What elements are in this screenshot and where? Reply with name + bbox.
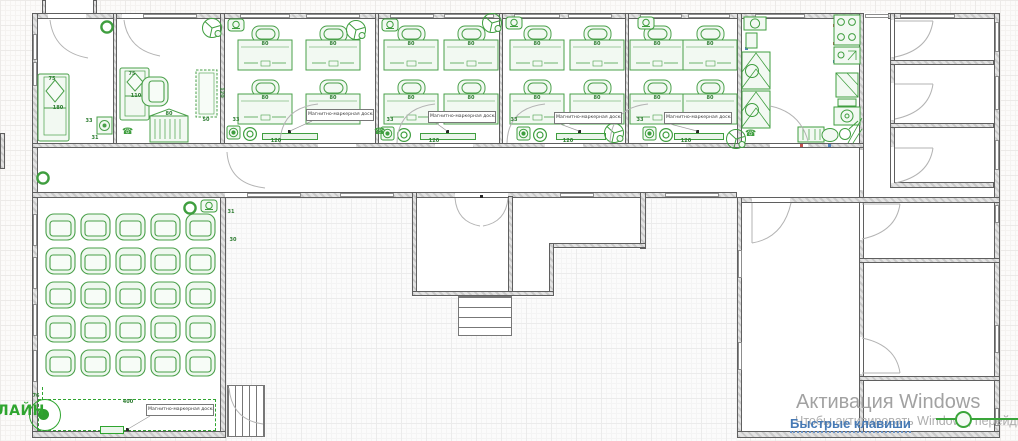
camera-icon[interactable] bbox=[201, 200, 217, 212]
appliance-dim: 31 bbox=[88, 136, 102, 141]
ceiling-fan-icon[interactable] bbox=[347, 21, 366, 40]
bin-icon[interactable] bbox=[660, 129, 673, 142]
camera-icon[interactable] bbox=[382, 19, 398, 31]
desk-width-dim: 80 bbox=[248, 42, 282, 47]
board-length-dim: 120 bbox=[422, 139, 446, 144]
chair[interactable] bbox=[81, 350, 110, 376]
wall-gap-dim: 33 bbox=[632, 118, 648, 123]
door-swing bbox=[50, 20, 933, 424]
desk[interactable] bbox=[238, 80, 292, 124]
chair[interactable] bbox=[116, 248, 145, 274]
desk-width-dim: 80 bbox=[248, 96, 282, 101]
chair[interactable] bbox=[151, 350, 180, 376]
desk-width-dim: 80 bbox=[580, 42, 614, 47]
ceiling-vent[interactable] bbox=[744, 17, 766, 30]
desk[interactable] bbox=[630, 26, 684, 70]
chair[interactable] bbox=[186, 248, 215, 274]
desk-width-dim: 80 bbox=[520, 96, 554, 101]
hall-dim: 30 bbox=[226, 238, 240, 243]
vent-fan-icon[interactable] bbox=[37, 172, 48, 183]
chair[interactable] bbox=[186, 350, 215, 376]
chair[interactable] bbox=[186, 214, 215, 240]
bin-icon[interactable] bbox=[534, 129, 547, 142]
chair[interactable] bbox=[46, 316, 75, 342]
chair[interactable] bbox=[151, 214, 180, 240]
desk-width-dim: 80 bbox=[316, 42, 350, 47]
desk[interactable] bbox=[384, 26, 438, 70]
desk[interactable] bbox=[510, 26, 564, 70]
desk-width-dim: 80 bbox=[394, 96, 428, 101]
hall-board-dim: 400 bbox=[108, 400, 148, 405]
chair[interactable] bbox=[116, 350, 145, 376]
desk-width-dim: 80 bbox=[454, 42, 488, 47]
furniture-layer bbox=[0, 0, 1018, 441]
board-label[interactable]: Магнитно-маркерная доска bbox=[664, 112, 732, 124]
shortcuts-link[interactable]: Быстрые клавиши bbox=[790, 416, 911, 433]
board-length-dim: 120 bbox=[264, 139, 288, 144]
sofa-width-dim: 75 bbox=[44, 77, 60, 82]
door-slider-handle[interactable] bbox=[955, 411, 972, 428]
appliance-dim: 33 bbox=[82, 119, 96, 124]
desk[interactable] bbox=[683, 26, 737, 70]
appliance[interactable] bbox=[97, 117, 112, 134]
table-width-dim: 50 bbox=[198, 118, 214, 123]
floor-plan-canvas: { "watermark": { "line1": "Активация Win… bbox=[0, 0, 1018, 441]
desk[interactable] bbox=[238, 26, 292, 70]
door-slider-track bbox=[936, 418, 1018, 420]
board-length-dim: 120 bbox=[556, 139, 580, 144]
desk-width-dim: 80 bbox=[394, 42, 428, 47]
desk[interactable] bbox=[570, 26, 624, 70]
chair[interactable] bbox=[142, 77, 168, 106]
phone-icon[interactable]: ☎ bbox=[745, 130, 756, 139]
wardrobe-dim: 80 bbox=[160, 112, 178, 117]
chair[interactable] bbox=[46, 214, 75, 240]
wall-gap-dim: 33 bbox=[506, 118, 522, 123]
chair[interactable] bbox=[151, 282, 180, 308]
chair[interactable] bbox=[116, 214, 145, 240]
desk-width-dim: 80 bbox=[454, 96, 488, 101]
sofa-length-dim: 180 bbox=[48, 106, 68, 111]
chair[interactable] bbox=[46, 282, 75, 308]
desk-width-dim: 80 bbox=[693, 96, 727, 101]
desk-width-dim: 80 bbox=[580, 96, 614, 101]
table[interactable] bbox=[196, 70, 217, 117]
board-length-dim: 120 bbox=[674, 139, 698, 144]
chair[interactable] bbox=[81, 316, 110, 342]
vent-fan-icon[interactable] bbox=[184, 202, 195, 213]
fridge-icon[interactable] bbox=[836, 73, 858, 97]
cabinet[interactable] bbox=[742, 52, 770, 89]
stove-icon[interactable] bbox=[834, 15, 860, 45]
chair[interactable] bbox=[81, 248, 110, 274]
camera-icon[interactable] bbox=[506, 17, 522, 29]
logo-text: ЛАЙН bbox=[0, 403, 45, 419]
desk-width-dim: 80 bbox=[693, 42, 727, 47]
chair[interactable] bbox=[46, 350, 75, 376]
ceiling-fan-icon[interactable] bbox=[203, 19, 222, 38]
phone-icon[interactable]: ☎ bbox=[374, 128, 385, 137]
chair[interactable] bbox=[186, 282, 215, 308]
sofa-length-dim: 110 bbox=[126, 94, 146, 99]
shelf[interactable] bbox=[838, 99, 856, 106]
desk-width-dim: 80 bbox=[640, 96, 674, 101]
leader-line bbox=[128, 121, 697, 429]
bin-icon[interactable] bbox=[398, 129, 411, 142]
board-label[interactable]: Магнитно-маркерная доска bbox=[306, 109, 374, 121]
chair[interactable] bbox=[151, 248, 180, 274]
ceiling-fan-icon[interactable] bbox=[727, 130, 746, 149]
chair[interactable] bbox=[81, 282, 110, 308]
wall-gap-dim: 33 bbox=[382, 118, 398, 123]
bin-icon[interactable] bbox=[244, 128, 257, 141]
camera-icon[interactable] bbox=[228, 19, 244, 31]
desk-width-dim: 80 bbox=[520, 42, 554, 47]
chair[interactable] bbox=[81, 214, 110, 240]
fire-extinguisher-icon[interactable] bbox=[227, 126, 240, 139]
fire-extinguisher-icon[interactable] bbox=[643, 127, 656, 140]
ceiling-fan-icon[interactable] bbox=[483, 14, 502, 33]
desk-width-dim: 80 bbox=[640, 42, 674, 47]
chair[interactable] bbox=[46, 248, 75, 274]
board-label[interactable]: Магнитно-маркерная доска bbox=[428, 111, 496, 123]
vent-fan-icon[interactable] bbox=[101, 21, 112, 32]
chair[interactable] bbox=[186, 316, 215, 342]
bench[interactable] bbox=[798, 127, 824, 142]
hall-dim: 31 bbox=[224, 210, 238, 215]
desk[interactable] bbox=[306, 26, 360, 70]
desk-width-dim: 80 bbox=[316, 96, 350, 101]
cabinet[interactable] bbox=[742, 91, 770, 128]
cabinet[interactable] bbox=[746, 33, 757, 48]
board-label[interactable]: Магнитно-маркерная доска bbox=[146, 404, 214, 416]
phone-icon[interactable]: ☎ bbox=[122, 128, 133, 137]
pin-offset-dim: 76 bbox=[28, 394, 44, 399]
fire-extinguisher-icon[interactable] bbox=[517, 127, 530, 140]
ceiling-fan-icon[interactable] bbox=[605, 124, 624, 143]
windows-activation-watermark: Активация Windows bbox=[796, 391, 980, 414]
chair[interactable] bbox=[116, 282, 145, 308]
board-label[interactable]: Магнитно-маркерная доска bbox=[554, 112, 622, 124]
chair[interactable] bbox=[151, 316, 180, 342]
chair[interactable] bbox=[116, 316, 145, 342]
wall-gap-dim: 33 bbox=[228, 118, 244, 123]
camera-icon[interactable] bbox=[638, 17, 654, 29]
sink-icon[interactable] bbox=[834, 47, 860, 64]
sofa-width-dim: 75 bbox=[124, 72, 140, 77]
table-length-dim: 120 bbox=[219, 84, 224, 102]
